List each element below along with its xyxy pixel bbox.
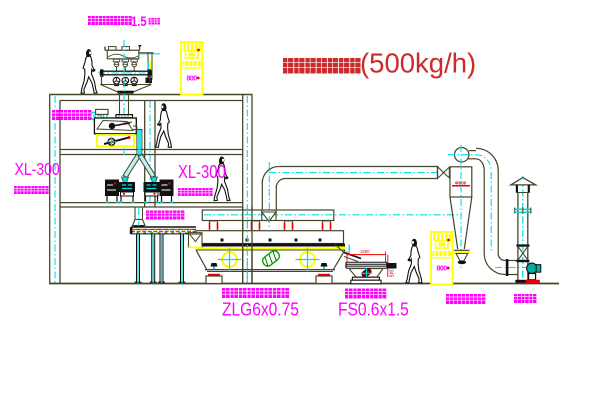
svg-text:800: 800 (187, 76, 198, 83)
svg-text:(500kg/h): (500kg/h) (360, 48, 476, 79)
svg-text:345: 345 (388, 269, 394, 278)
svg-text:1500: 1500 (360, 249, 370, 254)
svg-text:XL-300: XL-300 (15, 159, 60, 179)
svg-text:800: 800 (437, 266, 448, 273)
svg-text:XL-300: XL-300 (178, 161, 226, 182)
svg-text:1.5: 1.5 (131, 14, 147, 29)
svg-text:FS0.6x1.5: FS0.6x1.5 (338, 299, 409, 320)
svg-text:ZLG6x0.75: ZLG6x0.75 (222, 299, 299, 320)
